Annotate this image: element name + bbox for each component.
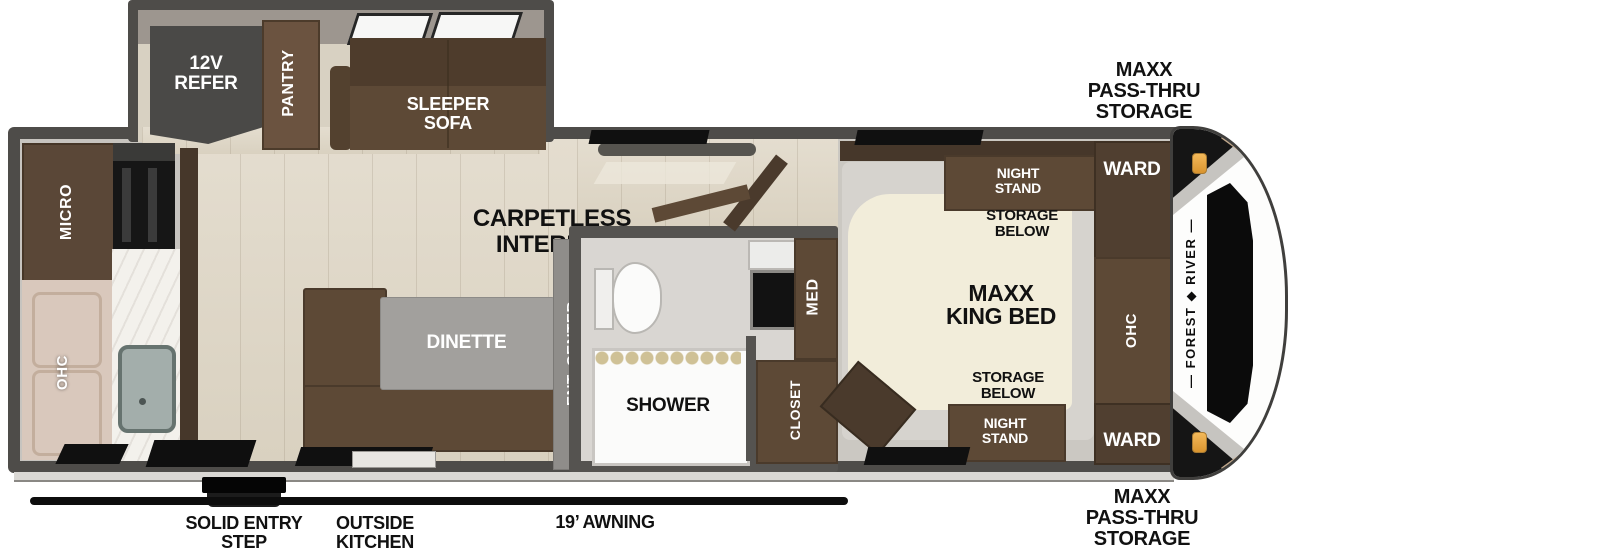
stove-grate bbox=[122, 168, 131, 242]
micro-label-wrap: MICRO bbox=[22, 145, 112, 278]
baggage-door-icon bbox=[352, 451, 436, 468]
awning-line bbox=[30, 497, 848, 505]
refrigerator-label: 12V REFER bbox=[154, 46, 258, 102]
rv-floorplan-image: 12V REFER PANTRY SLEEPER SOFA MICRO OHC … bbox=[0, 0, 1600, 555]
bath-mirror bbox=[750, 270, 798, 330]
storage-below-bottom-label: STORAGE BELOW bbox=[938, 370, 1078, 402]
entry-door-icon bbox=[146, 440, 257, 467]
marker-light-icon bbox=[1192, 432, 1207, 453]
kitchen-sink bbox=[118, 345, 176, 433]
kitchen-ohc-label: OHC bbox=[54, 354, 71, 389]
brand-decal-wrap: — FOREST ◆ RIVER — bbox=[1177, 211, 1205, 395]
window-icon bbox=[854, 130, 983, 145]
med-label: MED bbox=[805, 278, 823, 315]
shower-label: SHOWER bbox=[594, 396, 742, 416]
entry-step bbox=[202, 477, 286, 493]
window-icon bbox=[864, 447, 970, 465]
kitchen-end-panel bbox=[180, 148, 198, 453]
micro-label: MICRO bbox=[58, 183, 76, 239]
floor-light-patch bbox=[594, 162, 737, 184]
front-cap: — FOREST ◆ RIVER — bbox=[1170, 126, 1288, 480]
pass-thru-storage-bottom-label: MAXX PASS-THRU STORAGE bbox=[1046, 487, 1238, 550]
bath-divider-wall bbox=[746, 336, 756, 461]
toilet-bowl bbox=[612, 262, 662, 334]
shower-curtain-scallop bbox=[595, 351, 741, 366]
stove-grate bbox=[148, 168, 157, 242]
wardrobe-bottom-label: WARD bbox=[1096, 425, 1168, 457]
cap-windshield-decal bbox=[1207, 183, 1253, 423]
night-stand-top-label: NIGHT STAND bbox=[946, 157, 1090, 205]
dinette-bench-seat bbox=[303, 385, 565, 452]
toilet-tank bbox=[594, 268, 614, 330]
forest-river-logo-text: — FOREST ◆ RIVER — bbox=[1183, 218, 1199, 388]
bath-vanity bbox=[748, 240, 798, 270]
storage-below-top-label: STORAGE BELOW bbox=[952, 208, 1092, 240]
window-icon bbox=[589, 130, 710, 144]
med-label-wrap: MED bbox=[794, 240, 834, 354]
entry-step-label: SOLID ENTRY STEP bbox=[164, 514, 324, 552]
kitchen-ohc-label-wrap: OHC bbox=[34, 330, 92, 414]
underbody-strip bbox=[14, 472, 1174, 482]
sofa-arm bbox=[330, 66, 352, 150]
wardrobe-top-label: WARD bbox=[1096, 150, 1168, 190]
closet-label: CLOSET bbox=[787, 380, 803, 440]
pass-thru-storage-top-label: MAXX PASS-THRU STORAGE bbox=[1048, 60, 1240, 123]
skylight bbox=[598, 143, 756, 156]
awning-label: 19’ AWNING bbox=[520, 513, 690, 532]
king-bed-label: MAXX KING BED bbox=[901, 282, 1101, 328]
pantry-label: PANTRY bbox=[280, 49, 298, 117]
sink-drain bbox=[139, 398, 146, 405]
pantry-label-wrap: PANTRY bbox=[262, 22, 316, 144]
marker-light-icon bbox=[1192, 153, 1207, 174]
window-icon bbox=[55, 444, 128, 464]
range-vent bbox=[113, 143, 175, 161]
closet-label-wrap: CLOSET bbox=[756, 362, 834, 458]
outside-kitchen-label: OUTSIDE KITCHEN bbox=[302, 514, 448, 552]
sofa-label: SLEEPER SOFA bbox=[352, 86, 544, 142]
bedroom-ohc-label: OHC bbox=[1123, 312, 1140, 347]
dinette-label: DINETTE bbox=[382, 299, 551, 386]
bedroom-ohc-label-wrap: OHC bbox=[1094, 259, 1170, 401]
